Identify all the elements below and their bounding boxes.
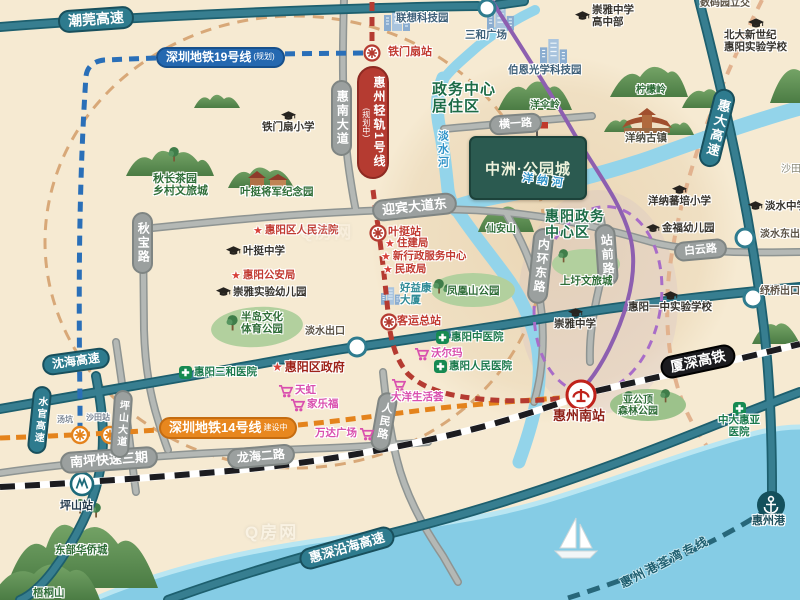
pingshan-station-icon (71, 473, 93, 495)
school-yangna-primary: 洋纳蕃培小学 (648, 185, 711, 208)
poi-rainbow-mall: 天虹 (278, 384, 316, 398)
station-pingshan: 坪山站 (60, 500, 93, 512)
station-huizhou-port: 惠州港 (752, 515, 785, 527)
hengyi-rd-pill: 横一路 (488, 112, 542, 136)
school-danshui-middle: 淡水中学 (748, 201, 800, 213)
poi-xiananshan: 仙安山 (486, 224, 516, 235)
poi-lenovo-park: 联想科技园 (396, 13, 449, 25)
poi-sanhe-plaza: 三和广场 (465, 30, 507, 42)
metro19-pill: 深圳地铁19号线(规划) (156, 47, 285, 68)
interchange-shuma: 数码园立交 (700, 0, 750, 9)
hospital-cross-icon (436, 331, 449, 344)
exit-danshui: 淡水出口 (305, 326, 345, 337)
star-icon: ★ (272, 361, 283, 374)
graduation-cap-icon (748, 201, 763, 212)
poi-renmin-hospital: 惠阳人民医院 (434, 360, 512, 373)
poi-tcm-hospital: 惠阳中医院 (436, 331, 504, 344)
poi-qiuchang-tea-garden: 秋长茶园乡村文旅城 (153, 173, 208, 198)
poi-yangna-old-town: 洋纳古镇 (625, 133, 667, 145)
poi-shangxu-town: 上圩文旅城 (560, 276, 613, 288)
shopping-cart-icon (414, 347, 429, 361)
poi-sanhe-hospital: 惠阳三和医院 (179, 366, 257, 379)
shopping-cart-icon (359, 427, 374, 441)
poi-admin-service-center: ★新行政服务中心 (381, 251, 466, 263)
shopping-cart-icon (290, 398, 305, 412)
star-icon: ★ (385, 238, 395, 250)
poi-wanda-plaza: 万达广场 (315, 427, 374, 441)
poi-yangsanling: 洋伞岭 (530, 100, 560, 111)
star-icon: ★ (253, 225, 263, 237)
station-tangkeng: 汤坑 (57, 416, 73, 425)
school-yeting-middle: 叶挺中学 (226, 246, 285, 258)
poi-fenghuangshan-park: 凤凰山公园 (447, 286, 500, 298)
qiubao-rd-pill: 秋宝路 (132, 212, 153, 274)
exit-danshui-east: 淡水东出口 (760, 229, 800, 240)
poi-haoyikang-tower: 好益康大厦 (400, 283, 432, 307)
poi-zhongda-hospital: 中大惠亚医院 (718, 402, 760, 439)
poi-yeting-memorial: 叶挺将军纪念园 (240, 187, 314, 199)
shopping-cart-icon (278, 384, 293, 398)
school-chongya-kindergarten: 崇雅实验幼儿园 (216, 287, 307, 299)
exit-shuqiao: 纾桥出口 (760, 286, 800, 297)
poi-zhujianju: ★住建局 (385, 238, 428, 250)
station-keyun: 客运总站 (397, 315, 441, 327)
river-danshui-label: 淡水河 (436, 130, 448, 169)
poi-bandao-park: 半岛文化体育公园 (241, 312, 283, 336)
poi-boen-optical-park: 伯恩光学科技园 (508, 65, 582, 77)
poi-carrefour: 家乐福 (290, 398, 339, 412)
star-icon: ★ (381, 251, 391, 263)
station-huizhou-south: 惠州南站 (553, 409, 605, 424)
star-icon: ★ (383, 264, 393, 276)
school-jinfu-kindergarten: 金福幼儿园 (646, 223, 715, 235)
poi-dayang-life-mall: 大洋生活荟 (391, 378, 444, 404)
location-map: 潮莞高速 沈海高速 惠大高速 惠深沿海高速 水官高速 惠南大道 迎宾大道东 横一… (0, 0, 800, 600)
hospital-cross-icon (179, 366, 192, 379)
poi-huiyang-district-gov: ★惠阳区政府 (272, 361, 345, 374)
area-shatian: 沙田 (781, 164, 800, 175)
school-tiemenshan-primary: 铁门扇小学 (262, 111, 315, 134)
poi-minzhengju: ★民政局 (383, 264, 426, 276)
poi-ningmengling: 柠檬岭 (636, 85, 666, 96)
school-beida-new-century: 北大新世纪惠阳实验学校 (724, 18, 787, 54)
district-gov-residence: 政务中心居住区 (432, 82, 496, 116)
poi-yagongding-park: 亚公顶森林公园 (618, 395, 658, 417)
star-icon: ★ (231, 270, 241, 282)
district-gov-center: 惠阳政务中心区 (545, 209, 605, 240)
huizhou-south-station-icon (567, 381, 595, 409)
school-chongya-high: 崇雅中学高中部 (575, 5, 634, 29)
graduation-cap-icon (575, 11, 590, 22)
poi-oct-east: 东部华侨城 (55, 545, 108, 557)
tram1-pill: 惠州轻轨1号线(规划中) (357, 66, 389, 179)
poi-wutongshan: 梧桐山 (33, 588, 65, 600)
graduation-cap-icon (216, 287, 231, 298)
project-zhongzhou-park-city: 中洲·公园城 (469, 136, 587, 200)
poi-huiyang-police: ★惠阳公安局 (231, 270, 295, 282)
station-shatian: 沙田站 (86, 414, 110, 423)
poi-walmart: 沃尔玛 (414, 347, 463, 361)
huinan-ave-pill: 惠南大道 (331, 80, 352, 156)
watermark: Q房网 (300, 218, 353, 243)
hospital-cross-icon (434, 360, 447, 373)
graduation-cap-icon (646, 224, 660, 234)
school-huiyang-no1: 惠阳一中实验学校 (628, 291, 712, 314)
watermark: Q房网 (245, 518, 298, 543)
station-tiemenshan: 铁门扇站 (388, 46, 432, 58)
school-chongya-middle: 崇雅中学 (554, 308, 596, 331)
graduation-cap-icon (226, 246, 241, 257)
metro14-pill: 深圳地铁14号线建设中 (159, 417, 297, 439)
shopping-cart-icon (391, 378, 406, 392)
